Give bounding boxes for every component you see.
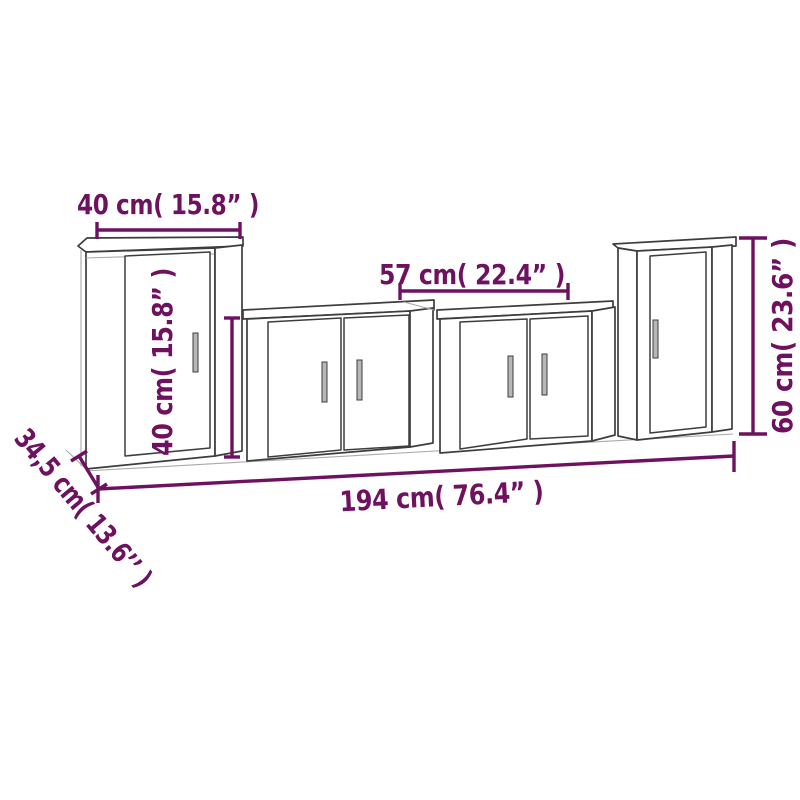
right-cabinet-side-right: [712, 245, 732, 432]
middle-cabinet-2-handle-right: [542, 354, 547, 395]
left-cabinet-side: [215, 245, 242, 456]
dim-label-small-height: 40 cm( 15.8” ): [146, 268, 179, 456]
dimension-top-width: 40 cm( 15.8” ): [77, 188, 259, 239]
dimension-large-height: 60 cm( 23.6” ): [739, 238, 799, 434]
right-cabinet-door-handle: [653, 320, 658, 358]
middle-cabinet-2-side: [592, 307, 615, 441]
middle-cabinet-2-door-left: [460, 319, 527, 449]
middle-cabinet-2-door-right: [530, 316, 588, 439]
middle-cabinet-1-handle-right: [357, 360, 362, 400]
dim-end-bar: [71, 451, 87, 461]
dimension-diagram-svg: 40 cm( 15.8” ) 57 cm( 22.4” ) 40 cm( 15.…: [0, 0, 800, 800]
middle-cabinet-1-side: [410, 308, 433, 447]
product-dimension-diagram: 40 cm( 15.8” ) 57 cm( 22.4” ) 40 cm( 15.…: [0, 0, 800, 800]
left-cabinet-door-handle: [193, 333, 198, 372]
middle-cabinet-1-door-right: [344, 315, 409, 450]
dim-label-inner-width: 57 cm( 22.4” ): [379, 258, 565, 291]
middle-cabinet-2: [437, 301, 615, 453]
dim-label-total-width: 194 cm( 76.4” ): [339, 475, 544, 519]
middle-cabinet-1: [243, 300, 434, 461]
right-cabinet-side-left: [618, 248, 637, 440]
middle-cabinet-1-door-left: [268, 318, 341, 457]
middle-cabinet-1-handle-left: [322, 362, 327, 402]
middle-cabinet-2-handle-left: [508, 356, 513, 397]
dimension-inner-width: 57 cm( 22.4” ): [379, 258, 568, 300]
dim-label-top-width: 40 cm( 15.8” ): [77, 188, 259, 221]
dim-label-large-height: 60 cm( 23.6” ): [766, 238, 799, 434]
right-tall-cabinet: [613, 237, 736, 440]
